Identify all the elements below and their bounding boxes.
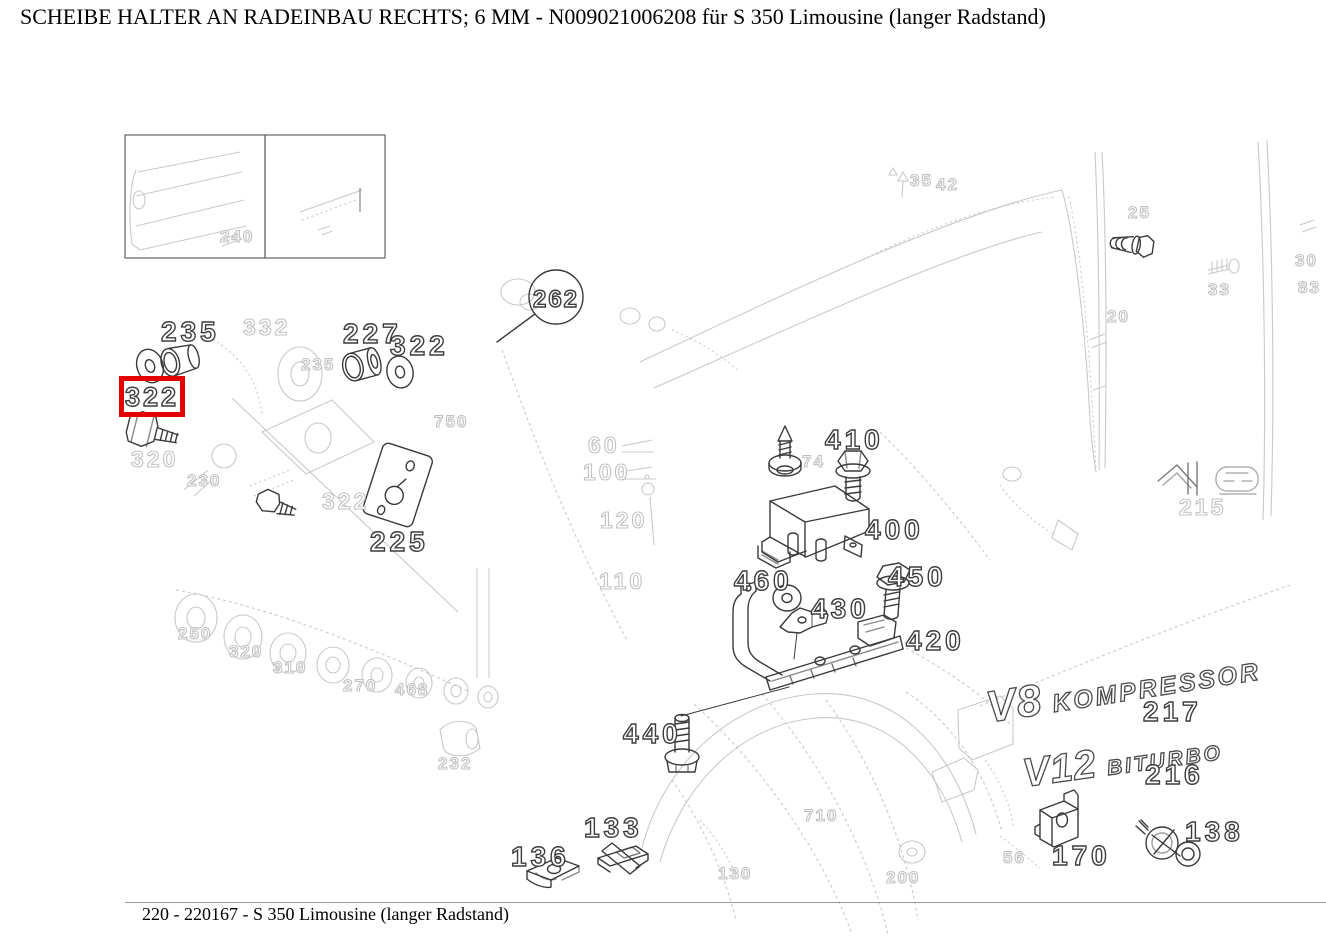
- part-label-440[interactable]: 440: [623, 720, 682, 748]
- faint-label-235: 235: [301, 356, 335, 373]
- clip-nut-170: [1035, 790, 1078, 847]
- part-label-322b[interactable]: 322: [390, 332, 449, 360]
- clip-right-edge: [1158, 462, 1258, 495]
- v12-badge-text: V12: [1020, 742, 1100, 796]
- car-body-outline: [125, 135, 1316, 934]
- faint-label-468: 468: [395, 681, 429, 698]
- part-label-216[interactable]: 216: [1145, 761, 1204, 789]
- faint-label-83: 83: [1298, 279, 1321, 296]
- faint-label-42: 42: [936, 176, 959, 193]
- faint-label-230: 230: [187, 472, 221, 489]
- faint-label-56: 56: [1003, 849, 1026, 866]
- part-label-235[interactable]: 235: [161, 318, 220, 346]
- faint-label-30: 30: [1295, 252, 1318, 269]
- faint-label-710: 710: [804, 807, 838, 824]
- faint-label-25: 25: [1128, 204, 1151, 221]
- faint-label-232: 232: [438, 755, 472, 772]
- spring-clip-133: [598, 843, 648, 874]
- part-label-430[interactable]: 430: [811, 595, 870, 623]
- faint-label-130: 130: [718, 865, 752, 882]
- part-label-410[interactable]: 410: [825, 426, 884, 454]
- footer-divider: [125, 902, 1326, 903]
- part-label-170[interactable]: 170: [1052, 842, 1111, 870]
- faint-label-33: 33: [1208, 281, 1231, 298]
- faint-label-74: 74: [802, 453, 825, 470]
- faint-label-200: 200: [886, 869, 920, 886]
- faint-label-215: 215: [1179, 496, 1226, 519]
- faint-label-35: 35: [910, 172, 933, 189]
- part-label-460[interactable]: 460: [734, 567, 793, 595]
- faint-label-270: 270: [343, 677, 377, 694]
- selected-part-highlight-box[interactable]: 322: [119, 376, 185, 417]
- part-label-400[interactable]: 400: [865, 516, 924, 544]
- mounting-plate-225: [362, 442, 434, 528]
- flange-bolt-410: [836, 451, 870, 501]
- part-label-138[interactable]: 138: [1185, 818, 1244, 846]
- faint-label-332: 332: [243, 316, 290, 339]
- faint-label-320b: 320: [229, 643, 263, 660]
- inset-detail-boxes: [125, 135, 385, 258]
- part-label-420[interactable]: 420: [906, 627, 965, 655]
- part-label-133[interactable]: 133: [584, 814, 643, 842]
- faint-label-310: 310: [273, 659, 307, 676]
- exploded-parts-diagram: [0, 0, 1326, 938]
- faint-label-320a: 320: [131, 448, 178, 471]
- faint-label-100: 100: [583, 461, 630, 484]
- hex-bolt-top-right: [1109, 231, 1155, 259]
- part-label-262[interactable]: 262: [530, 286, 582, 314]
- faint-label-750: 750: [434, 413, 468, 430]
- faint-label-322: 322: [322, 490, 369, 513]
- parts-catalog-page: SCHEIBE HALTER AN RADEINBAU RECHTS; 6 MM…: [0, 0, 1326, 938]
- v8-badge-text: V8: [983, 675, 1046, 732]
- part-label-217[interactable]: 217: [1143, 698, 1202, 726]
- faint-label-60: 60: [588, 434, 620, 457]
- control-module-400: [758, 486, 869, 568]
- part-label-136[interactable]: 136: [511, 843, 570, 871]
- footer-text: 220 - 220167 - S 350 Limousine (langer R…: [142, 904, 509, 925]
- faint-label-120: 120: [600, 509, 647, 532]
- faint-label-110: 110: [599, 570, 645, 593]
- tapping-screw: [769, 426, 801, 476]
- sleeve-227: [340, 346, 384, 383]
- small-hex-bolt: [254, 487, 298, 519]
- part-label-450[interactable]: 450: [888, 563, 947, 591]
- faint-label-240: 240: [220, 228, 254, 245]
- faint-label-20: 20: [1107, 308, 1130, 325]
- faint-label-250: 250: [178, 625, 212, 642]
- part-label-225[interactable]: 225: [370, 528, 429, 556]
